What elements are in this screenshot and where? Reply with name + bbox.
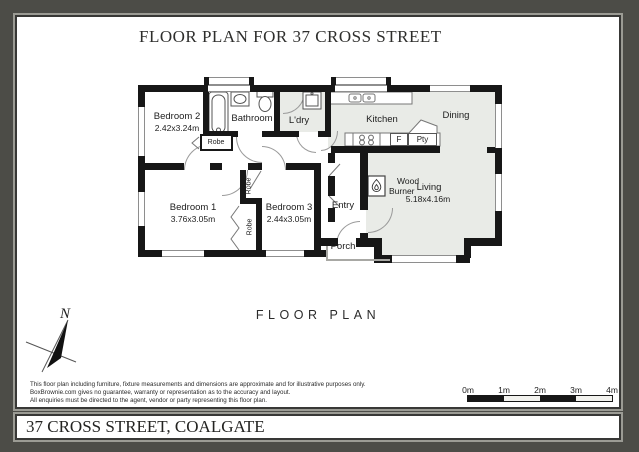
wall <box>387 85 430 92</box>
disclaimer-line: BoxBrownie.com gives no guarantee, warra… <box>30 389 450 397</box>
north-label: N <box>59 306 71 322</box>
robe-label: Robe <box>208 139 225 146</box>
wall <box>325 92 331 133</box>
window-sill <box>331 77 391 85</box>
robe-label: Robe <box>246 178 253 195</box>
scale-bar-segment <box>468 396 504 401</box>
disclaimer-line: This floor plan including furniture, fix… <box>30 381 450 389</box>
scale-tick: 4m <box>606 385 618 395</box>
pantry-label: Pty <box>417 135 429 144</box>
scale-bar-segment <box>504 396 540 401</box>
window <box>430 85 470 92</box>
scale-tick: 3m <box>570 385 582 395</box>
window <box>335 85 387 92</box>
room-label-dining: Dining <box>443 111 470 121</box>
wall <box>203 92 209 135</box>
room-label-ldry: L'dry <box>289 116 309 126</box>
room-label-living: Living <box>417 183 442 193</box>
fridge-label: F <box>397 135 402 144</box>
wall <box>248 163 262 170</box>
room-label-bedroom1: Bedroom 1 <box>170 203 216 213</box>
window <box>138 107 145 156</box>
room-dims-bedroom3: 2.44x3.05m <box>267 214 311 224</box>
disclaimer-line: All enquiries must be directed to the ag… <box>30 397 450 405</box>
wall <box>318 131 331 137</box>
wood-burner-label-2: Burner <box>389 186 415 196</box>
wall <box>464 238 502 246</box>
window <box>392 255 456 263</box>
room-dims-bedroom1: 3.76x3.05m <box>171 214 215 224</box>
wall <box>495 85 502 104</box>
room-label-porch: Porch <box>331 242 356 252</box>
window <box>495 104 502 148</box>
room-dims-bedroom2: 2.42x3.24m <box>155 123 199 133</box>
wall <box>138 250 162 257</box>
fridge-box: F <box>390 133 408 146</box>
wall <box>210 163 222 170</box>
room-label-bedroom3: Bedroom 3 <box>266 203 312 213</box>
toilet-icon <box>257 90 273 112</box>
wall <box>262 131 275 137</box>
wall <box>275 131 299 137</box>
wall <box>304 250 328 257</box>
disclaimer-text: This floor plan including furniture, fix… <box>30 381 450 405</box>
wall <box>386 77 391 85</box>
scale-bar <box>467 395 613 402</box>
robe-label: Robe <box>247 219 254 236</box>
wall <box>495 148 502 174</box>
window <box>495 174 502 211</box>
wall <box>138 85 208 92</box>
scale-bar-segment <box>540 396 576 401</box>
wall <box>328 176 335 196</box>
room-label-entry: Entry <box>332 201 354 211</box>
window <box>266 250 304 257</box>
wall <box>331 77 336 85</box>
kitchen-bench-icon <box>326 92 412 104</box>
wall <box>314 163 321 250</box>
floorplan-page: FLOOR PLAN FOR 37 CROSS STREET <box>0 0 639 452</box>
north-arrow: N <box>26 306 76 372</box>
wall <box>250 85 335 92</box>
pantry-box: Pty <box>408 133 437 146</box>
wall <box>360 153 368 210</box>
wall <box>360 233 368 246</box>
scale-bar-segment <box>576 396 612 401</box>
wall <box>249 77 254 85</box>
window-sill <box>204 77 254 85</box>
room-label-kitchen: Kitchen <box>366 115 398 125</box>
wood-burner-label-1: Wood <box>397 176 419 186</box>
wall <box>138 85 145 107</box>
pantry-return-icon <box>409 120 437 133</box>
room-label-bedroom2: Bedroom 2 <box>154 112 200 122</box>
footer-address: 37 CROSS STREET, COALGATE <box>26 414 265 440</box>
window <box>162 250 204 257</box>
wall <box>204 77 209 85</box>
vanity-sink-icon <box>231 92 249 106</box>
wall <box>274 92 280 133</box>
room-label-bathroom: Bathroom <box>231 114 272 124</box>
wall <box>138 156 145 192</box>
wall <box>487 147 495 153</box>
scale-tick: 2m <box>534 385 546 395</box>
plan-caption: FLOOR PLAN <box>256 308 380 322</box>
wall <box>138 163 184 170</box>
wall <box>204 250 266 257</box>
scale-tick: 0m <box>462 385 474 395</box>
wall <box>464 246 471 258</box>
wall <box>256 204 262 250</box>
window <box>138 192 145 226</box>
wall <box>328 153 335 163</box>
porch-edge <box>326 259 390 261</box>
laundry-tub-icon <box>303 92 321 109</box>
wall <box>331 146 440 153</box>
window <box>208 85 250 92</box>
wood-burner-icon <box>368 176 385 196</box>
scale-tick: 1m <box>498 385 510 395</box>
